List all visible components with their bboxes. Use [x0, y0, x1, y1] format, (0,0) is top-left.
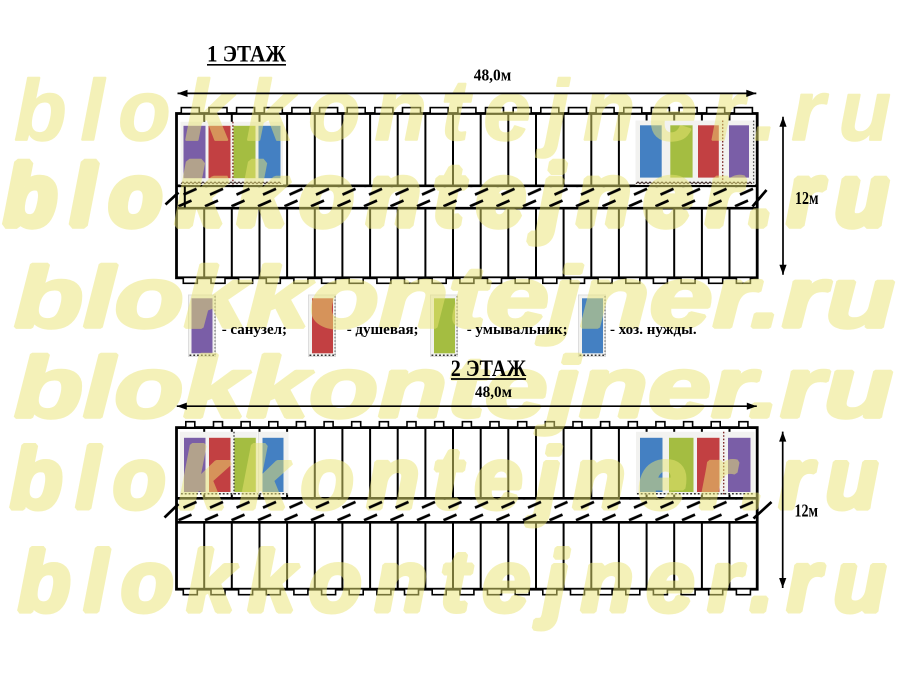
- svg-text:- санузел;: - санузел;: [222, 322, 287, 338]
- svg-text:12м: 12м: [795, 501, 819, 521]
- svg-text:blokkontejner.ru: blokkontejner.ru: [14, 63, 891, 159]
- svg-text:- хоз. нужды.: - хоз. нужды.: [610, 322, 697, 338]
- svg-text:48,0м: 48,0м: [475, 384, 512, 401]
- svg-text:blokkontejner.ru: blokkontejner.ru: [14, 340, 893, 436]
- svg-text:12м: 12м: [795, 188, 819, 208]
- svg-text:- душевая;: - душевая;: [347, 322, 419, 338]
- svg-text:- умывальник;: - умывальник;: [467, 322, 568, 338]
- svg-text:blokkontejner.ru: blokkontejner.ru: [18, 534, 886, 630]
- svg-text:48,0м: 48,0м: [474, 66, 512, 85]
- svg-text:1 ЭТАЖ: 1 ЭТАЖ: [207, 42, 287, 68]
- svg-text:2 ЭТАЖ: 2 ЭТАЖ: [451, 356, 527, 382]
- svg-text:blokkontejner.ru: blokkontejner.ru: [14, 250, 895, 346]
